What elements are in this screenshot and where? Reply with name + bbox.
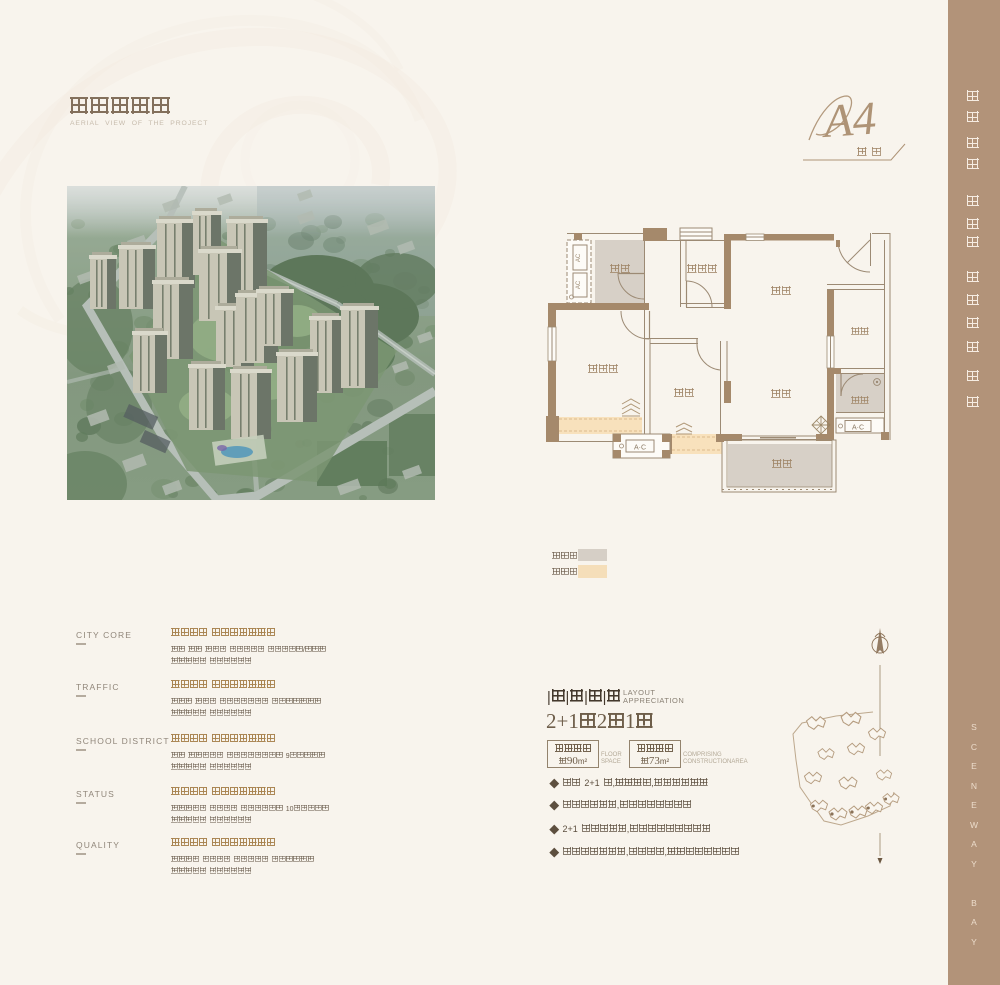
- svg-text:A4: A4: [819, 92, 878, 148]
- svg-text:AC: AC: [576, 280, 582, 289]
- svg-text:AC: AC: [576, 253, 582, 262]
- svg-text:A·C: A·C: [634, 445, 646, 452]
- svg-text:A·C: A·C: [852, 425, 864, 432]
